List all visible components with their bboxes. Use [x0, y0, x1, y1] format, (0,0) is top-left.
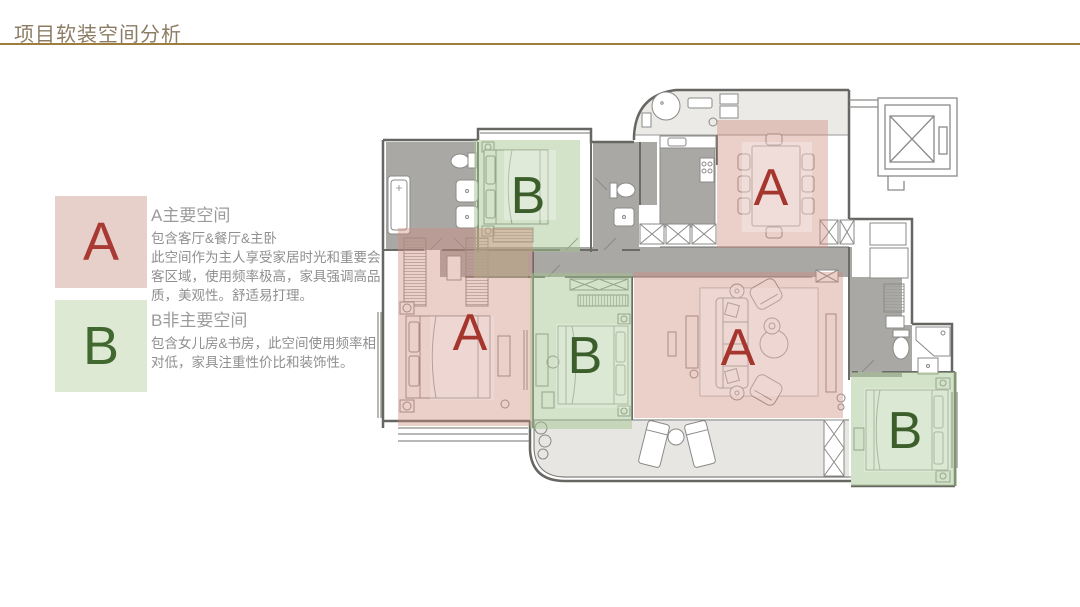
floorplan: B A A B A B [375, 80, 1020, 495]
zone-label-dining: A [754, 159, 789, 217]
zone-label-bedroom-bottom: B [888, 402, 923, 460]
slide: 项目软装空间分析 A A主要空间 包含客厅&餐厅&主卧 此空间作为主人享受家居时… [0, 0, 1080, 607]
legend-body-b: 包含女儿房&书房，此空间使用频率相对低，家具注重性价比和装饰性。 [151, 334, 387, 372]
legend-letter-b: B [83, 315, 119, 377]
zone-label-bedroom-middle: B [568, 327, 603, 385]
zone-label-bedroom-top: B [511, 167, 546, 225]
toilet-icon [893, 337, 909, 359]
entry-door [720, 94, 738, 104]
kitchen-sink-icon [668, 138, 686, 146]
table-icon [668, 429, 684, 445]
radiator-icon [884, 284, 904, 312]
legend-heading-a: A主要空间 [151, 201, 387, 226]
legend-text-b: B非主要空间 包含女儿房&书房，此空间使用频率相对低，家具注重性价比和装饰性。 [151, 306, 387, 372]
elevator [849, 98, 957, 190]
toilet-icon [617, 183, 635, 197]
toilet-icon [451, 154, 469, 168]
legend-letter-a: A [83, 211, 119, 273]
legend-heading-b: B非主要空间 [151, 306, 387, 331]
table-icon [652, 92, 680, 120]
legend-body-a: 此空间作为主人享受家居时光和重要会客区域，使用频率极高，家具强调高品质，美观性。… [151, 248, 387, 305]
zone-label-master-bedroom: A [453, 304, 488, 362]
legend-swatch-b: B [55, 300, 147, 392]
title-underline [0, 43, 1080, 45]
legend-subheading-a: 包含客厅&餐厅&主卧 [151, 229, 387, 248]
legend-text-a: A主要空间 包含客厅&餐厅&主卧 此空间作为主人享受家居时光和重要会客区域，使用… [151, 201, 387, 305]
legend-swatch-a: A [55, 196, 147, 288]
elevator-x-icon [890, 116, 934, 162]
cabinet-row [640, 224, 716, 244]
zone-label-living: A [721, 319, 756, 377]
shower-icon [916, 327, 950, 356]
